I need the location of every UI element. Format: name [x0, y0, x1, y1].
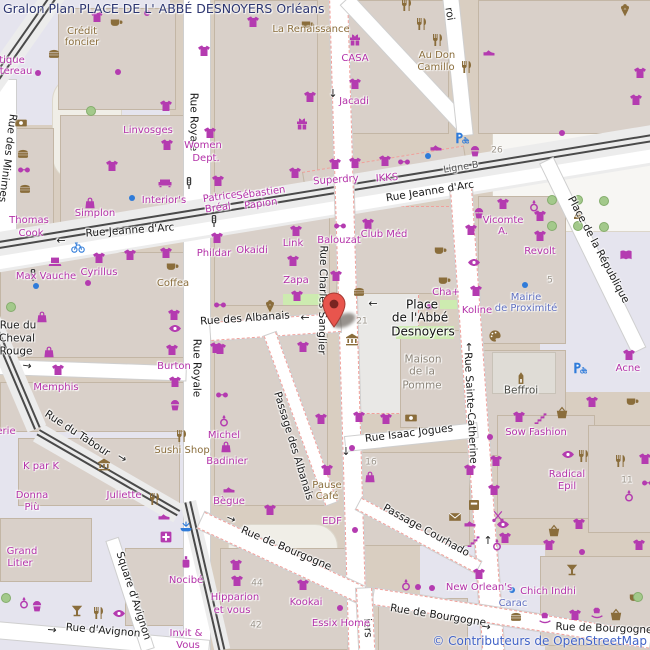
- street-label: Rue d'Avignon: [65, 622, 141, 640]
- street-label: Rue Isaac Jogues: [364, 423, 453, 445]
- shop-label: K par K: [23, 462, 59, 473]
- osm-attribution[interactable]: © Contributeurs de OpenStreetMap: [432, 634, 647, 648]
- shop-label: Sébastien: [236, 185, 286, 202]
- shop-label: Phildar: [197, 249, 232, 260]
- shop-label: Acne: [616, 364, 641, 375]
- page-title: Gralon Plan PLACE DE L' ABBÉ DESNOYERS O…: [3, 1, 325, 16]
- street-label: Rue Jeanne d'Arc: [385, 180, 475, 205]
- amenity-label: Coffea: [157, 279, 189, 290]
- place-marker[interactable]: [322, 292, 346, 328]
- shop-label: Simplon: [75, 209, 115, 220]
- oneway-arrow: →: [225, 512, 238, 526]
- historic-label: Beffroi: [504, 385, 538, 396]
- amenity-label: Café: [316, 492, 339, 503]
- street-label: Rue Sainte-Catherine: [462, 352, 479, 464]
- street-label: Rue des Albanais: [200, 310, 290, 327]
- oneway-arrow: ↓: [328, 88, 337, 100]
- shop-label: Vous: [176, 641, 200, 650]
- shop-label: Nocibé: [169, 576, 203, 587]
- street-label: Place de la République: [565, 195, 631, 306]
- shop-label: IKKS: [375, 173, 398, 185]
- amenity-label: Camillo: [417, 63, 454, 74]
- street-label: Rue Royale: [187, 93, 198, 152]
- shop-label: Radical: [549, 470, 585, 481]
- place-name-label: Maison: [405, 354, 442, 365]
- shop-label: erie: [0, 427, 16, 438]
- civic-label: de Proximité: [495, 304, 558, 315]
- house-number: 44: [251, 579, 262, 588]
- amenity-label: Pause: [312, 481, 341, 492]
- street-label: Rue du: [0, 320, 36, 331]
- shop-label: CASA: [341, 54, 368, 65]
- shop-label: et vous: [214, 606, 251, 617]
- place-title-label: de l'Abbé: [392, 312, 448, 325]
- street-label: Rue Royale: [190, 339, 201, 398]
- shop-label: Interior's: [142, 196, 186, 207]
- amenity-label: foncier: [65, 38, 100, 49]
- street-label: Rue du Tabour: [43, 409, 112, 459]
- street-label: iers: [361, 618, 373, 638]
- oneway-arrow: ↓: [341, 446, 350, 458]
- shop-label: Linvosges: [123, 126, 173, 137]
- shop-label: Superdry: [313, 174, 359, 188]
- shop-label: Memphis: [33, 383, 78, 394]
- shop-label: Koline: [462, 306, 492, 317]
- oneway-arrow: ←: [56, 235, 65, 247]
- amenity-label: Au Don: [419, 51, 456, 62]
- map-canvas[interactable]: Rue Jeanne d'ArcRue Jeanne d'ArcLigne BR…: [0, 0, 650, 650]
- oneway-arrow: →: [115, 451, 129, 466]
- shop-label: tereau: [0, 67, 32, 78]
- shop-label: Link: [283, 239, 303, 250]
- shop-label: Revolt: [524, 247, 555, 258]
- civic-label: Carac: [499, 599, 528, 610]
- shop-label: Epil: [558, 482, 576, 493]
- house-number: 42: [250, 621, 261, 630]
- shop-label: Bègue: [213, 497, 245, 508]
- shop-label: New Orlean's: [446, 583, 512, 594]
- street-label: Cheval: [0, 333, 35, 344]
- street-label: Rue Jeanne d'Arc: [85, 222, 175, 239]
- street-label: Square d'Avignon: [114, 551, 153, 642]
- shop-label: Bréal: [204, 202, 231, 216]
- amenity-label: Sushi Shop: [154, 446, 209, 457]
- shop-label: Chich Indhi: [520, 587, 576, 598]
- shop-label: Più: [25, 503, 40, 514]
- shop-label: A.: [498, 227, 508, 238]
- shop-label: Okaidi: [236, 246, 268, 257]
- shop-label: Kookai: [290, 598, 323, 609]
- oneway-arrow: ↑: [483, 535, 492, 547]
- shop-label: Patrice: [202, 190, 237, 205]
- street-sublabel: Ligne B: [443, 160, 479, 175]
- shop-label: Michel: [208, 431, 240, 442]
- street-label: Rouge: [0, 346, 33, 357]
- shop-label: tique: [0, 56, 25, 67]
- street-label: Rue de Bourgogne: [389, 603, 487, 629]
- street-label: roi: [442, 6, 455, 21]
- shop-label: Cook: [18, 229, 43, 240]
- place-title-label: Desnoyers: [391, 326, 455, 339]
- shop-label: Balouzat: [317, 236, 361, 247]
- shop-label: Cha+: [432, 288, 460, 299]
- shop-label: Vicomte: [483, 216, 524, 227]
- place-title-label: Place: [406, 299, 438, 312]
- house-number: 11: [621, 476, 632, 485]
- oneway-arrow: ←: [368, 298, 377, 310]
- shop-label: Litier: [7, 559, 32, 570]
- shop-label: Donna: [16, 491, 49, 502]
- house-number: 16: [365, 458, 376, 467]
- shop-label: Thomas: [9, 216, 49, 227]
- shop-label: Club Méd: [361, 230, 408, 241]
- shop-label: Juliette: [107, 491, 142, 502]
- shop-label: Essix Home: [312, 619, 370, 630]
- house-number: 26: [491, 146, 502, 155]
- shop-label: Dept.: [192, 154, 219, 165]
- shop-label: Zapa: [283, 276, 308, 287]
- civic-label: Mairie: [511, 293, 542, 304]
- shop-label: EDF: [322, 517, 342, 528]
- street-label: Passage Courhado: [381, 503, 471, 560]
- house-number: 21: [356, 317, 367, 326]
- oneway-arrow: ←: [300, 312, 309, 324]
- amenity-label: La Renaissance: [272, 25, 349, 36]
- shop-label: Papion: [244, 197, 278, 212]
- shop-label: Burton: [157, 362, 191, 373]
- amenity-label: Crédit: [67, 27, 97, 38]
- shop-label: Hipparion: [211, 593, 259, 604]
- shop-label: Max Vauche: [16, 272, 76, 283]
- oneway-arrow: →: [22, 360, 33, 373]
- place-name-label: de la: [409, 366, 435, 377]
- shop-label: Invit &: [170, 629, 203, 640]
- shop-label: Badinier: [206, 457, 248, 468]
- street-label: Passage des Albanais: [271, 390, 314, 501]
- shop-label: Jacadi: [339, 97, 369, 108]
- oneway-arrow: →: [481, 621, 492, 634]
- shop-label: Cyrillus: [81, 268, 118, 279]
- shop-label: Sow Fashion: [505, 428, 567, 439]
- oneway-arrow: →: [47, 624, 57, 636]
- house-number: 5: [547, 276, 553, 285]
- street-label: Rue de Bourgogne: [239, 525, 333, 573]
- place-name-label: Pomme: [402, 380, 441, 391]
- street-label: Rue des Minimes: [0, 113, 18, 203]
- shop-label: Women: [184, 141, 222, 152]
- shop-label: Grand: [7, 547, 38, 558]
- oneway-arrow: ↑: [464, 342, 473, 354]
